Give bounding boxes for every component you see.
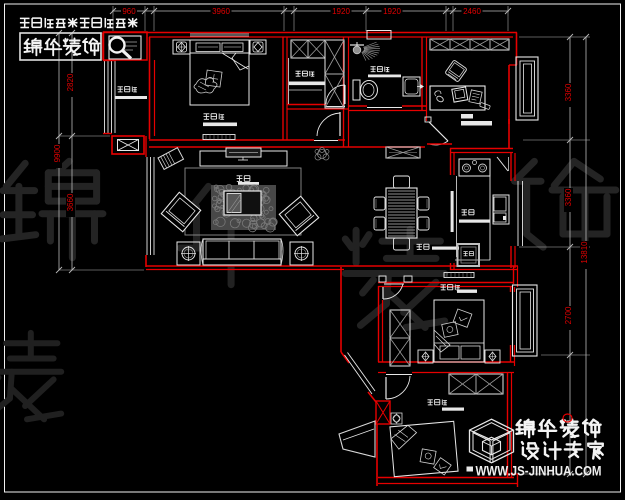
svg-text:1920: 1920 (383, 7, 401, 16)
svg-text:9900: 9900 (53, 144, 62, 162)
svg-text:3960: 3960 (212, 7, 230, 16)
svg-text:3360: 3360 (564, 83, 573, 101)
svg-text:960: 960 (122, 7, 136, 16)
svg-text:3360: 3360 (564, 188, 573, 206)
svg-text:13810: 13810 (580, 241, 589, 264)
svg-text:2700: 2700 (564, 306, 573, 324)
svg-text:WWW.JS-JINHUA.COM: WWW.JS-JINHUA.COM (476, 464, 602, 479)
svg-text:2460: 2460 (463, 7, 481, 16)
svg-text:3660: 3660 (66, 193, 75, 211)
svg-text:1920: 1920 (332, 7, 350, 16)
svg-text:2820: 2820 (66, 73, 75, 91)
